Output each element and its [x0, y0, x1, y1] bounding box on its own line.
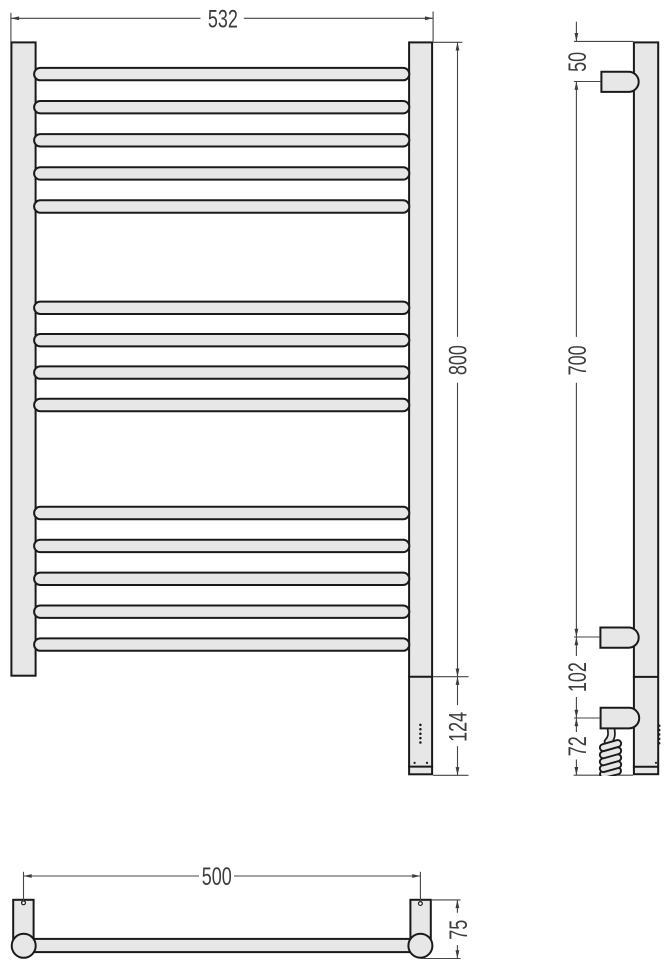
- svg-text:75: 75: [444, 920, 473, 940]
- svg-text:102: 102: [563, 662, 592, 692]
- svg-text:500: 500: [202, 862, 232, 891]
- svg-text:532: 532: [208, 4, 238, 33]
- svg-text:800: 800: [444, 345, 473, 375]
- svg-text:50: 50: [563, 52, 592, 72]
- svg-text:72: 72: [563, 736, 592, 756]
- svg-text:124: 124: [444, 712, 473, 742]
- svg-text:700: 700: [563, 345, 592, 375]
